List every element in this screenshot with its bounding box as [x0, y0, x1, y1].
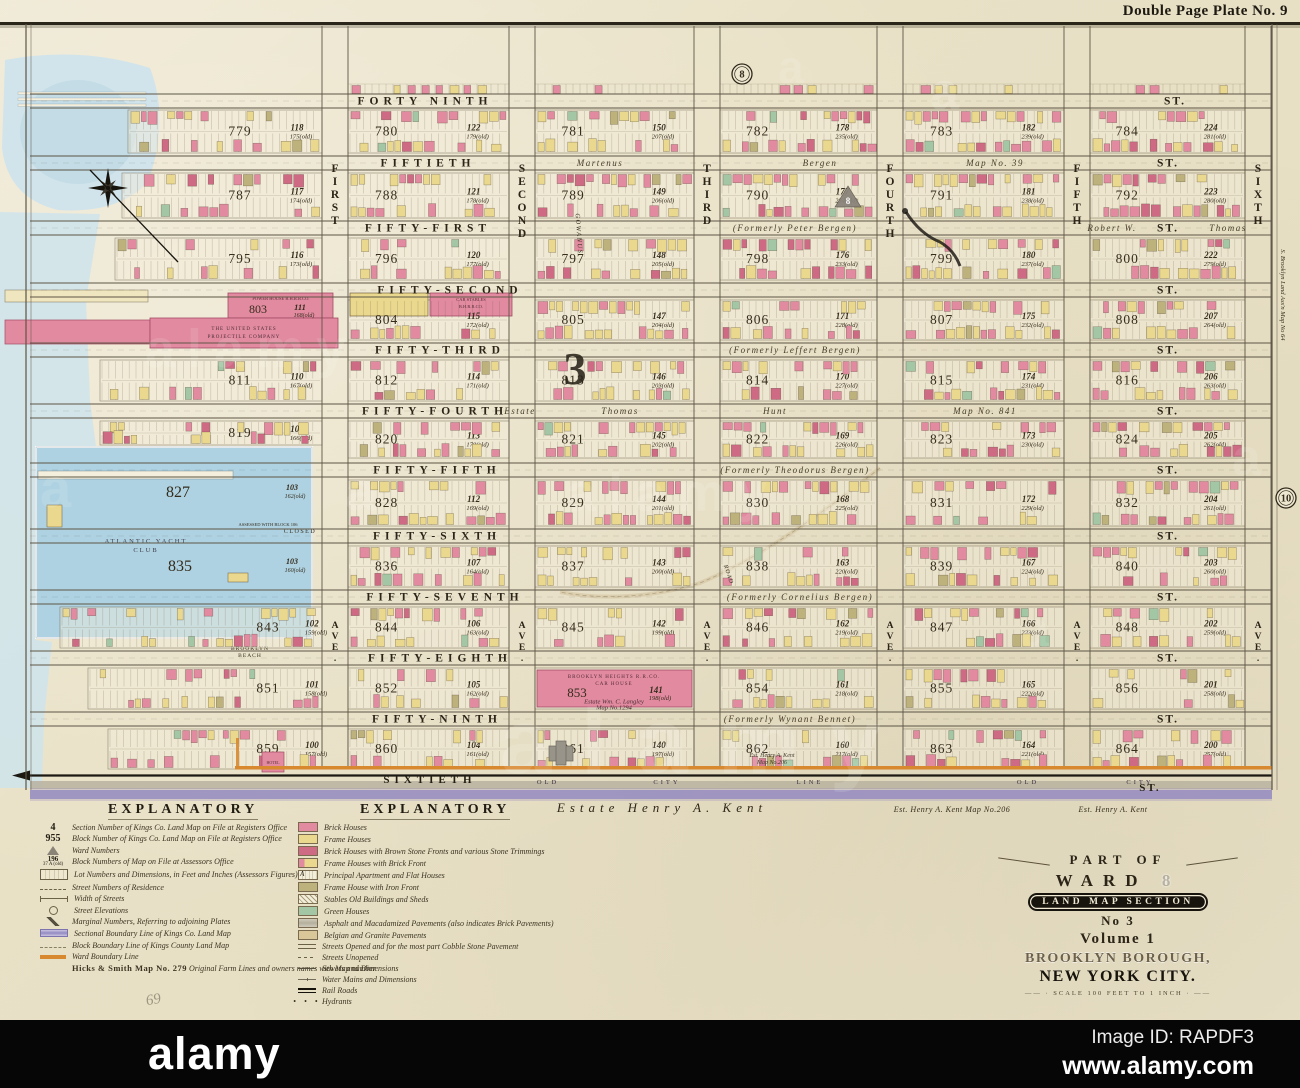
car-house-label: CAR HOUSE: [595, 682, 632, 687]
block-lot-old: 168(old): [294, 312, 315, 319]
shore-lot-old: 160(old): [285, 567, 306, 574]
block-number-829: 829: [562, 495, 585, 510]
alamy-url[interactable]: www.alamy.com: [1062, 1052, 1254, 1081]
block-lot-old: 261(old): [1204, 505, 1226, 512]
legend-item-text: Belgian and Granite Pavements: [324, 931, 426, 940]
street-annotation: Map No. 841: [952, 406, 1017, 416]
block-lot-old: 171(old): [466, 383, 488, 390]
avenue-suffix-letter: A: [519, 621, 526, 631]
shore-lot: 103: [286, 483, 298, 492]
cartouche-borough: BROOKLYN BOROUGH,: [992, 951, 1244, 967]
block-lot-old: 227(old): [835, 383, 857, 390]
avenue-suffix-letter: V: [519, 632, 526, 642]
legend-left-item: Block Boundary Line of Kings County Land…: [40, 941, 295, 950]
block-lot-old: 161(old): [466, 751, 488, 758]
street-name: FIFTY-SEVENTH: [366, 592, 523, 604]
block-number-827: 827: [166, 484, 190, 501]
street-annotation: (Formerly Peter Bergen): [733, 223, 857, 233]
block-lot-old: 172(old): [466, 322, 488, 329]
sw-sewer-swatch: [298, 967, 316, 970]
avenue-name-letter: H: [886, 228, 895, 240]
block-number-798: 798: [746, 251, 769, 266]
avenue-suffix-letter: V: [332, 632, 339, 642]
street-name: FIFTIETH: [381, 158, 476, 170]
avenue-name-letter: U: [886, 189, 895, 201]
legend-item-text: Asphalt and Macadamized Pavements (also …: [324, 919, 554, 928]
legend-right-items: Brick HousesFrame HousesBrick Houses wit…: [298, 822, 578, 1006]
street-annotation: (Formerly Wynant Bennet): [724, 714, 856, 724]
street-fifty-first: FIFTY-FIRSTST.(Formerly Peter Bergen)Rob…: [30, 221, 1272, 235]
city-blocks: 779118175(old)780122179(old)781150207(ol…: [5, 110, 1245, 769]
cartouche-banner: LAND MAP SECTION: [1030, 895, 1206, 909]
legend-left-item: Ward Numbers: [40, 846, 295, 855]
block-lot: 222: [1203, 250, 1218, 260]
street-fifty-second: FIFTY-SECONDST.: [30, 283, 1272, 297]
legend-left-item: 955Block Number of Kings Co. Land Map on…: [40, 834, 295, 843]
block-lot: 182: [1022, 123, 1036, 133]
street-name: FORTY NINTH: [358, 96, 493, 108]
block-number-830: 830: [746, 495, 769, 510]
street-fifty-fourth: FIFTY-FOURTHST.EstateThomasHuntMap No. 8…: [30, 404, 1272, 418]
block-lot-old: 225(old): [835, 505, 857, 512]
avenue-suffix-letter: E: [1255, 643, 1261, 653]
block-lot-old: 237(old): [1021, 261, 1043, 268]
block-lot-old: 204(old): [652, 322, 674, 329]
avenue-suffix-letter: E: [1074, 643, 1080, 653]
block-number-791: 791: [930, 188, 953, 203]
street-name: FIFTY-THIRD: [375, 345, 505, 357]
block-lot: 203: [1203, 558, 1218, 568]
stock-photo-bar: alamy Image ID: RAPDF3 www.alamy.com: [0, 1020, 1300, 1088]
block-number-804: 804: [375, 312, 398, 327]
cartouche-ward: WARD 8: [992, 871, 1244, 891]
margin-note: S. Brooklyn Land Ass'n Map No 64: [1279, 249, 1286, 341]
block-lot: 106: [467, 619, 481, 629]
block-lot: 174: [1022, 372, 1036, 382]
legend-right-item: Frame Houses with Brick Front: [298, 858, 578, 868]
block-number-812: 812: [375, 373, 398, 388]
num-swatch: 955: [40, 834, 66, 843]
block-lot-old: 238(old): [1021, 198, 1043, 205]
legend-item-text: Brick Houses with Brown Stone Fronts and…: [324, 847, 545, 856]
street-name: FIFTY-EIGHTH: [368, 653, 512, 665]
block-lot: 181: [1022, 187, 1036, 197]
legend-left-item: 4Section Number of Kings Co. Land Map on…: [40, 823, 295, 832]
ward-label: WARD: [1056, 871, 1148, 890]
avenue-name-letter: F: [1073, 163, 1080, 175]
street-name: FIFTY-SECOND: [377, 285, 522, 297]
block-number-846: 846: [746, 620, 769, 635]
sw-brown-swatch: [298, 846, 318, 856]
legend-item-text: Ward Boundary Line: [72, 952, 139, 961]
ward-number-triangle: 8: [846, 196, 851, 206]
block-lot-old: 197(old): [652, 751, 674, 758]
block-lot-old: 219(old): [835, 630, 857, 637]
block-number-844: 844: [375, 620, 398, 635]
block-lot-old: 173(old): [290, 261, 312, 268]
cartouche-part-of: PART OF: [992, 852, 1244, 868]
block-lot: 141: [649, 685, 663, 695]
legend-item-text: Water Mains and Dimensions: [322, 975, 417, 984]
street-suffix: ST.: [1164, 96, 1186, 108]
street-annotation: Map No. 39: [965, 158, 1024, 168]
block-number-835: 835: [168, 558, 192, 575]
atlantic-yacht-club-label: ATLANTIC YACHT: [105, 538, 188, 545]
avenue-name-letter: C: [518, 189, 526, 201]
street-name: FIFTY-FIFTH: [373, 465, 500, 477]
legend-item-text: Frame House with Iron Front: [324, 883, 419, 892]
legend-item-text: Frame Houses with Brick Front: [324, 859, 426, 868]
legend-item-text: Marginal Numbers, Referring to adjoining…: [72, 917, 230, 926]
block-lot-old: 232(old): [1021, 322, 1043, 329]
block-lot-old: 218(old): [835, 691, 857, 698]
avenue-name-letter: S: [332, 202, 338, 214]
avenue-name-letter: H: [1254, 215, 1263, 227]
block-number-790: 790: [746, 188, 769, 203]
avenue-suffix-letter: .: [706, 654, 708, 664]
block-number-823: 823: [930, 432, 953, 447]
block-number-789: 789: [562, 188, 585, 203]
block-number-783: 783: [930, 124, 953, 139]
street-annotation: Hunt: [762, 406, 787, 416]
ward-number: 8: [1162, 871, 1181, 890]
sw-fbrick-swatch: [298, 858, 318, 868]
adjoining-plate-10: 10: [1281, 494, 1292, 505]
kent-estate-block-label: Map No.206: [756, 760, 787, 766]
block-number-796: 796: [375, 251, 398, 266]
avenue-name-letter: D: [703, 215, 711, 227]
avenue-first: FIRSTAVE.: [322, 26, 348, 768]
avenue-third: THIRDAVE.: [694, 26, 720, 768]
cartouche-scale: SCALE 100 FEET TO 1 INCH: [992, 990, 1244, 997]
block-lot-old: 259(old): [1204, 630, 1226, 637]
avenue-suffix-letter: E: [332, 643, 338, 653]
block-number-815: 815: [930, 373, 953, 388]
block-853: BROOKLYN HEIGHTS R.R.CO.CAR HOUSE8531411…: [535, 668, 694, 712]
sw-unop-swatch: [298, 956, 316, 959]
street-annotation: Robert W.: [1086, 223, 1136, 233]
marg-swatch: [40, 917, 66, 926]
block-lot-old: 201(old): [652, 505, 674, 512]
block-number-838: 838: [746, 559, 769, 574]
legend-item-text: Ward Numbers: [72, 846, 120, 855]
block-lot: 164: [1022, 740, 1036, 750]
legend-item-text: Principal Apartment and Flat Houses: [324, 871, 445, 880]
street-annotation: Bergen: [803, 158, 838, 168]
kent-estate-label: Estate Henry A. Kent: [556, 800, 767, 815]
legend-left-item: Sectional Boundary Line of Kings Co. Lan…: [40, 929, 295, 938]
cartouche-volume: Volume 1: [992, 931, 1244, 948]
block-number-852: 852: [375, 681, 398, 696]
langley-map-label: Map No.1294: [595, 705, 633, 712]
block-lot: 165: [1022, 680, 1036, 690]
legend-left-title: EXPLANATORY: [108, 802, 258, 820]
block-lot-old: 207(old): [652, 134, 674, 141]
map-canvas: 827835ATLANTIC YACHTCLUB103162(old)10316…: [0, 0, 1300, 820]
avenue-suffix-letter: .: [521, 654, 523, 664]
atlantic-yacht-club-label: CLUB: [133, 547, 158, 554]
street-forty-ninth: FORTY NINTHST.: [30, 94, 1272, 108]
block-lot: 167: [1022, 558, 1036, 568]
legend-right-item: Asphalt and Macadamized Pavements (also …: [298, 918, 578, 928]
avenue-suffix-letter: .: [1257, 654, 1259, 664]
block-number-845: 845: [562, 620, 585, 635]
street-name: FIFTY-SIXTH: [373, 531, 501, 543]
avenue-suffix-letter: E: [887, 643, 893, 653]
assessed-note: ASSESSED WITH BLOCK 106: [238, 522, 298, 527]
blockb-swatch: [40, 943, 66, 948]
legend-item-text: Width of Streets: [74, 894, 124, 903]
block-lot: 201: [1203, 680, 1218, 690]
block-number-828: 828: [375, 495, 398, 510]
resid-swatch: [40, 885, 66, 890]
avenue-name-letter: X: [1254, 189, 1263, 201]
legend-item-text: Street Numbers of Residence: [72, 883, 164, 892]
legend-item-text: Stables Old Buildings and Sheds: [324, 895, 428, 904]
avenue-suffix-letter: V: [1074, 632, 1081, 642]
none-swatch: [40, 964, 66, 973]
num2-swatch: 19637 A (old): [40, 857, 66, 866]
sect-swatch: [40, 929, 68, 937]
block-lot: 202: [1203, 619, 1218, 629]
avenue-name-letter: O: [518, 202, 527, 214]
legend-item-text: Lot Numbers and Dimensions, in Feet and …: [74, 870, 298, 879]
avenue-suffix-letter: V: [704, 632, 711, 642]
image-id-text: Image ID: RAPDF3: [1062, 1027, 1254, 1049]
block-lot: 101: [305, 680, 319, 690]
avenue-name-letter: F: [331, 163, 338, 175]
block-number-807: 807: [930, 312, 953, 327]
avenue-name-letter: T: [331, 215, 339, 227]
old-city-line-label: OLD: [1017, 779, 1039, 786]
kent-estate-206-label: Est. Henry A. Kent Map No.206: [893, 805, 1011, 814]
avenue-name-letter: I: [705, 189, 710, 201]
cartouche-no: No 3: [992, 913, 1244, 929]
avenue-name-letter: O: [886, 176, 895, 188]
block-number-863: 863: [930, 741, 953, 756]
street-name: FIFTY-NINTH: [372, 714, 502, 726]
block-lot: 116: [290, 250, 304, 260]
elev-swatch: [49, 906, 58, 915]
projectile-co-label: THE UNITED STATES: [211, 327, 276, 332]
block-lot: 204: [1203, 494, 1218, 504]
block-lot: 180: [1022, 250, 1036, 260]
block-number-836: 836: [375, 559, 398, 574]
block-lot-old: 163(old): [466, 630, 488, 637]
legend-right-item: Stables Old Buildings and Sheds: [298, 894, 578, 904]
block-number-831: 831: [930, 495, 953, 510]
legend-item-text: Rail Roads: [322, 986, 357, 995]
sw-apart-swatch: [298, 870, 318, 880]
street-annotation: (Formerly Theodorus Bergen): [720, 465, 869, 475]
block-lot: 223: [1203, 187, 1218, 197]
sw-open-swatch: [298, 944, 316, 949]
legend-item-text: Section Number of Kings Co. Land Map on …: [72, 823, 287, 832]
block-lot-old: 235(old): [835, 134, 857, 141]
stock-photo-info: Image ID: RAPDF3 www.alamy.com: [1062, 1027, 1254, 1081]
block-lot: 105: [467, 680, 481, 690]
avenue-sixth: SIXTHAVE.: [1245, 26, 1271, 768]
sw-green-swatch: [298, 906, 318, 916]
shore-lot: 103: [286, 557, 298, 566]
avenue-name-letter: R: [703, 202, 712, 214]
block-lot: 166: [1022, 619, 1036, 629]
shore-lot-old: 162(old): [285, 493, 306, 500]
block-number-781: 781: [562, 124, 585, 139]
street-suffix: ST.: [1157, 592, 1179, 604]
block-lot: 112: [467, 494, 481, 504]
block-lot-old: 205(old): [652, 261, 674, 268]
street-suffix: ST.: [1157, 223, 1179, 235]
block-number-811: 811: [229, 373, 252, 388]
avenue-name-letter: T: [703, 163, 711, 175]
legend-left-item: 19637 A (old)Block Numbers of Map on Fil…: [40, 857, 295, 866]
legend-right-title: EXPLANATORY: [360, 802, 510, 820]
legend-left-item: Ward Boundary Line: [40, 952, 295, 961]
block-lot-old: 281(old): [1204, 134, 1226, 141]
block-lot: 120: [467, 250, 481, 260]
block-lot: 118: [290, 123, 304, 133]
num-swatch: 4: [40, 823, 66, 832]
title-cartouche: PART OF WARD 8 LAND MAP SECTION No 3 Vol…: [992, 852, 1244, 997]
block-lot: 115: [467, 311, 481, 321]
avenue-name-letter: N: [518, 215, 527, 227]
street-suffix: ST.: [1157, 653, 1179, 665]
street-name: FIFTY-FIRST: [365, 223, 491, 235]
avenue-suffix-letter: A: [1255, 621, 1262, 631]
avenue-suffix-letter: E: [519, 643, 525, 653]
block-lot: 111: [294, 302, 306, 312]
sw-iron-swatch: [298, 882, 318, 892]
block-lot: 224: [1203, 123, 1218, 133]
block-lot-old: 224(old): [1021, 569, 1043, 576]
legend-right-item: Sewers and Dimensions: [298, 964, 578, 973]
avenue-name-letter: R: [886, 202, 895, 214]
legend-explanatory-left: EXPLANATORY 4Section Number of Kings Co.…: [40, 800, 295, 973]
avenue-fourth: FOURTHAVE.: [877, 26, 903, 768]
avenue-name-letter: H: [703, 176, 712, 188]
street-annotation: Thomas: [601, 406, 639, 416]
legend-item-text: Block Numbers of Map on File at Assessor…: [72, 857, 234, 866]
sw-brick-swatch: [298, 822, 318, 832]
avenue-suffix-letter: A: [704, 621, 711, 631]
legend-right-item: Green Houses: [298, 906, 578, 916]
block-number-805: 805: [562, 312, 585, 327]
avenue-suffix-letter: A: [1074, 621, 1081, 631]
legend-left-item: Hicks & Smith Map No. 279 Original Farm …: [40, 964, 295, 973]
car-house-label: BROOKLYN HEIGHTS R.R.CO.: [568, 675, 661, 680]
sw-hydr-swatch: [298, 998, 316, 1006]
avenue-name-letter: H: [1073, 215, 1082, 227]
projectile-co-label: PROJECTILE COMPANY: [208, 335, 281, 340]
avenue-name-letter: D: [518, 228, 526, 240]
block-number-821: 821: [562, 432, 585, 447]
block-number-799: 799: [930, 251, 953, 266]
legend-right-item: Frame Houses: [298, 834, 578, 844]
legend-item-text: Block Boundary Line of Kings County Land…: [72, 941, 229, 950]
block-lot: 102: [305, 619, 319, 629]
width-swatch: [40, 896, 68, 902]
block-lot-old: 179(old): [466, 134, 488, 141]
cartouche-city: NEW YORK CITY.: [992, 968, 1244, 986]
legend-item-text: Sectional Boundary Line of Kings Co. Lan…: [74, 929, 231, 938]
block-lot: 107: [467, 558, 481, 568]
street-suffix: ST.: [1157, 465, 1179, 477]
closed-note: CLOSED: [284, 529, 316, 535]
block-lot-old: 229(old): [1021, 505, 1043, 512]
sw-rail-swatch: [298, 988, 316, 993]
block-number-860: 860: [375, 741, 398, 756]
legend-right-item: Belgian and Granite Pavements: [298, 930, 578, 940]
block-lot: 121: [467, 187, 481, 197]
avenue-name-letter: T: [886, 215, 894, 227]
legend-right-item: Frame House with Iron Front: [298, 882, 578, 892]
block-number-837: 837: [562, 559, 585, 574]
block-lot: 200: [1203, 740, 1218, 750]
street-fifty-eighth: FIFTY-EIGHTHST.: [30, 651, 1272, 665]
avenue-suffix-letter: .: [334, 654, 336, 664]
legend-left-item: Street Numbers of Residence: [40, 883, 295, 892]
street-annotation: Thomas: [1209, 223, 1247, 233]
street-name: FIFTY-FOURTH: [362, 406, 508, 418]
block-lot-old: 203(old): [652, 383, 674, 390]
block-number-822: 822: [746, 432, 769, 447]
block-number-843: 843: [256, 620, 279, 635]
block-lot-old: 178(old): [466, 198, 488, 205]
block-number-787: 787: [228, 188, 251, 203]
block-lot: 122: [467, 123, 481, 133]
block-number-780: 780: [375, 124, 398, 139]
block-lot-old: 166(old): [290, 435, 312, 442]
block-number-782: 782: [746, 124, 769, 139]
old-city-line-label: LINE: [797, 779, 824, 786]
block-lot: 205: [1203, 431, 1218, 441]
hotel-label: HOTEL: [266, 760, 280, 765]
block-number-795: 795: [228, 251, 251, 266]
avenue-fifth: FIFTHAVE.: [1064, 26, 1090, 768]
sw-stable-swatch: [298, 894, 318, 904]
block-lot-old: 200(old): [652, 569, 674, 576]
old-city-line-label: OLD: [537, 779, 559, 786]
legend-item-text: Hydrants: [322, 997, 352, 1006]
kent-estate-plain-label: Est. Henry A. Kent: [1077, 805, 1147, 814]
legend-right-item: Streets Unopened: [298, 953, 578, 962]
block-lot-old: 264(old): [1204, 322, 1226, 329]
avenue-suffix-letter: .: [1076, 654, 1078, 664]
block-number-803: 803: [249, 302, 267, 316]
block-number-806: 806: [746, 312, 769, 327]
old-city-line-label: CITY: [1126, 779, 1153, 786]
kent-estate-block-label: Est. Henry A. Kent: [748, 753, 794, 759]
legend-item-text: Street Elevations: [74, 906, 128, 915]
legend-explanatory-right: EXPLANATORY Brick HousesFrame HousesBric…: [298, 800, 578, 1006]
block-lot-old: 162(old): [466, 691, 488, 698]
block-number-855: 855: [930, 681, 953, 696]
block-lot-old: 159(old): [305, 630, 327, 637]
atlas-map: 827835ATLANTIC YACHTCLUB103162(old)10316…: [0, 0, 1300, 820]
legend-left-item: Marginal Numbers, Referring to adjoining…: [40, 917, 295, 926]
street-fifty-ninth: FIFTY-NINTHST.(Formerly Wynant Bennet): [30, 712, 1272, 726]
street-annotation: Estate: [503, 406, 536, 416]
block-lot: 114: [467, 372, 481, 382]
ward-swatch: [40, 955, 66, 959]
street-annotation: (Formerly Cornelius Bergen): [727, 592, 873, 602]
avenue-suffix-letter: A: [332, 621, 339, 631]
street-name-sixtieth: SIXTIETH: [383, 774, 476, 786]
street-suffix: ST.: [1157, 531, 1179, 543]
avenue-suffix-letter: A: [887, 621, 894, 631]
block-lot-old: 280(old): [1204, 198, 1226, 205]
